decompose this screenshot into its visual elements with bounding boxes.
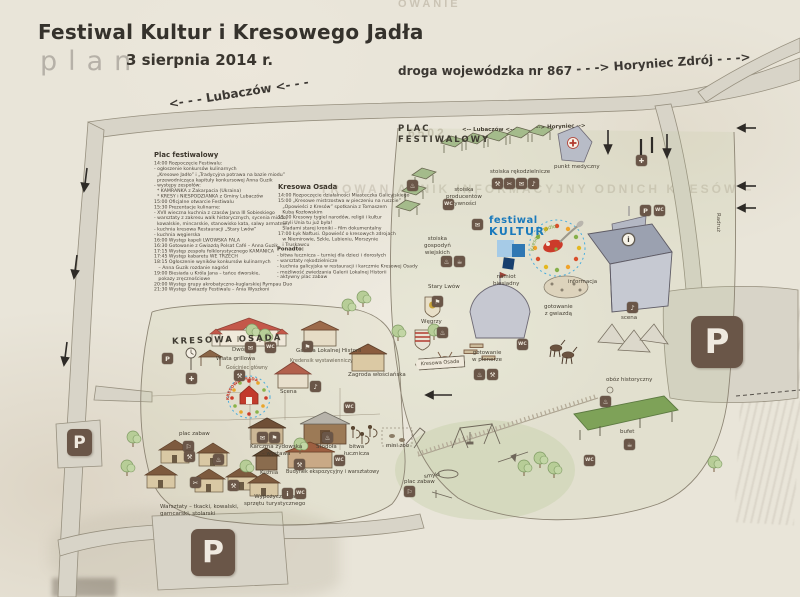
scena-icon: ♪	[627, 302, 638, 313]
wc-icon-5: WC	[334, 455, 345, 466]
galeria-icon: ⚑	[302, 341, 313, 352]
warsztat-icon-1: ⚒	[184, 451, 195, 462]
wc-icon-3: WC	[517, 339, 528, 350]
plac-festiwalowy-area-label: PLAC FESTIWALOWY	[398, 124, 490, 145]
karczma-icon-1: ✉	[257, 432, 268, 443]
info-point-icon: i	[622, 233, 635, 246]
program-ponadto: Ponadto: - bitwa łucznicza – turniej dla…	[277, 246, 420, 280]
craft-stall-icon-4: ♪	[528, 178, 539, 189]
karczma-zydowska-label: Karczma żydowska – wystawa	[250, 444, 302, 458]
warsztaty-label: Warsztaty – tkacki, kowalski, garncarski…	[160, 504, 239, 518]
plener-craft-icon: ⚒	[487, 369, 498, 380]
program-line: - aktywny plac zabaw	[277, 275, 420, 280]
gotowanie-w-plenerze-label: gotowanie w plenerze	[472, 350, 502, 364]
wc-icon-2: WC	[654, 205, 665, 216]
wc-icon-4: WC	[344, 402, 355, 413]
stoiska-rekodzielnicze-label: stoiska rękodzielnicze	[490, 169, 550, 176]
plac-zabaw-label: plac zabaw	[404, 479, 435, 486]
wegry-shield	[415, 330, 430, 350]
festiwal-kultur-logo: festiwal KULTUR	[489, 216, 545, 237]
osada-firstaid-icon: ✚	[186, 373, 197, 384]
informacja-label: informacja	[568, 279, 597, 286]
bufet-label: bufet	[620, 429, 634, 436]
gospodynie-icon-1: ♨	[441, 256, 452, 267]
craft-stall-icon-2: ✂	[504, 178, 515, 189]
program-kresowa-osada: Kresowa Osada 14:00 Rozpoczęcie działaln…	[278, 183, 421, 248]
dwor-icon-2: WC	[265, 342, 276, 353]
road-radruz-label: Radruż	[714, 213, 721, 232]
wiata-grillowa-label: Wiata grillowa	[216, 356, 255, 363]
program-plac-title: Plac festiwalowy	[154, 151, 297, 159]
parking-area-west: P	[67, 429, 92, 456]
warsztat-icon-2: ♨	[213, 454, 224, 465]
gospodynie-icon-2: ☕	[454, 256, 465, 267]
craft-stall-icon-1: ⚒	[492, 178, 503, 189]
punkt-medyczny-label: punkt medyczny	[554, 164, 600, 171]
stoiska-gospodyn-label: stoiska gospodyń wiejskich	[424, 236, 451, 257]
craft-stall-icon-3: ✉	[516, 178, 527, 189]
event-date: 3 sierpnia 2014 r.	[126, 51, 273, 69]
osada-craft-icon: ⚒	[234, 370, 245, 381]
wc-icon-7: WC	[584, 455, 595, 466]
festiwal-logo-line2: KULTUR	[489, 226, 545, 237]
mini-zoo-label: mini zoo	[386, 443, 409, 450]
scena-label: scena	[621, 315, 637, 322]
stary-lwow-label: Stary Lwów	[428, 284, 460, 291]
program-osada-title: Kresowa Osada	[278, 183, 421, 191]
program-plac-festiwalowy: Plac festiwalowy 14:00 Rozpoczęcie Festi…	[154, 151, 297, 293]
stodola-icon: ♨	[322, 432, 333, 443]
logo-square-dark	[502, 257, 514, 269]
logo-square-mid	[512, 244, 525, 257]
plener-cooking-icon: ♨	[474, 369, 485, 380]
kuznia-label: Kuźnia	[260, 470, 278, 477]
plac-zabaw-icon: ⚐	[404, 486, 415, 497]
gosciniec-glowny-label: Gościniec główny	[226, 366, 268, 372]
food-stall-icon: ♨	[407, 180, 418, 191]
bitwa-lucznicza-label: bitwa łucznicza	[344, 444, 369, 458]
road-voivodeship-label: droga wojewódzka nr 867	[398, 64, 572, 78]
gotowanie-z-gwiazda-label: gotowanie z gwiazdą	[544, 304, 573, 318]
parking-small-icon: P	[640, 205, 651, 216]
program-ponadto-lines: - bitwa łucznicza – turniej dla dzieci i…	[277, 253, 420, 280]
oboz-icon: ♨	[600, 396, 611, 407]
stary-lwow-icon: ⚑	[432, 296, 443, 307]
kuznia-icon: ⚒	[294, 459, 305, 470]
warsztat-icon-3: ✂	[190, 477, 201, 488]
mail-icon-plac: ✉	[472, 219, 483, 230]
festival-map-poster: OWANIE TROWAN ANNIK INFORMACYJNY ODNICH …	[0, 0, 800, 597]
firstaid-icon: ✚	[636, 155, 647, 166]
oboz-historyczny-label: obóz historyczny	[606, 377, 652, 384]
scena-osada-icon: ♪	[310, 381, 321, 392]
tree-icon	[708, 456, 722, 472]
karczma-icon-2: ⚑	[269, 432, 280, 443]
tree-icon	[127, 431, 141, 447]
tree-icon	[357, 291, 371, 307]
page-title: Festiwal Kultur i Kresowego Jadła	[38, 20, 424, 44]
warsztat-icon-4: ⚒	[228, 480, 239, 491]
scena-osada-label: Scena	[280, 389, 297, 396]
program-line: 21:30 Występ Gwiazdy Festiwalu – Ania Wy…	[154, 287, 297, 292]
kredens-label: Kredensik wystawienniczy	[290, 359, 353, 365]
program-plac-lines: 14:00 Rozpoczęcie Festiwalu:- ogłoszenie…	[154, 161, 297, 293]
wegrzy-icon: ♨	[437, 327, 448, 338]
parking-area-east: P	[691, 316, 743, 368]
zagroda-label: Zagroda włościańska	[348, 372, 406, 379]
wc-icon-6: WC	[295, 488, 306, 499]
tree-icon	[121, 460, 135, 476]
wc-icon-1: WC	[443, 199, 454, 210]
wegrzy-label: Węgrzy	[421, 319, 442, 326]
wypozyczalnia-info-icon: i	[282, 488, 293, 499]
namiot-biesiadny-label: namiot biesiadny	[493, 274, 519, 288]
parking-tiny-icon: P	[162, 353, 173, 364]
map-drawing: Kresowe Jadło KRESOWA OSADA	[0, 0, 800, 597]
plac-zabaw-osada-label: plac zabaw	[179, 431, 210, 438]
parking-area-south: P	[191, 529, 235, 576]
dwor-icon-1: ✉	[245, 342, 256, 353]
program-osada-lines: 14:00 Rozpoczęcie działalności Miasteczk…	[278, 193, 421, 248]
bufet-icon: ☕	[624, 439, 635, 450]
stodola-label: Stodoła	[316, 444, 337, 451]
